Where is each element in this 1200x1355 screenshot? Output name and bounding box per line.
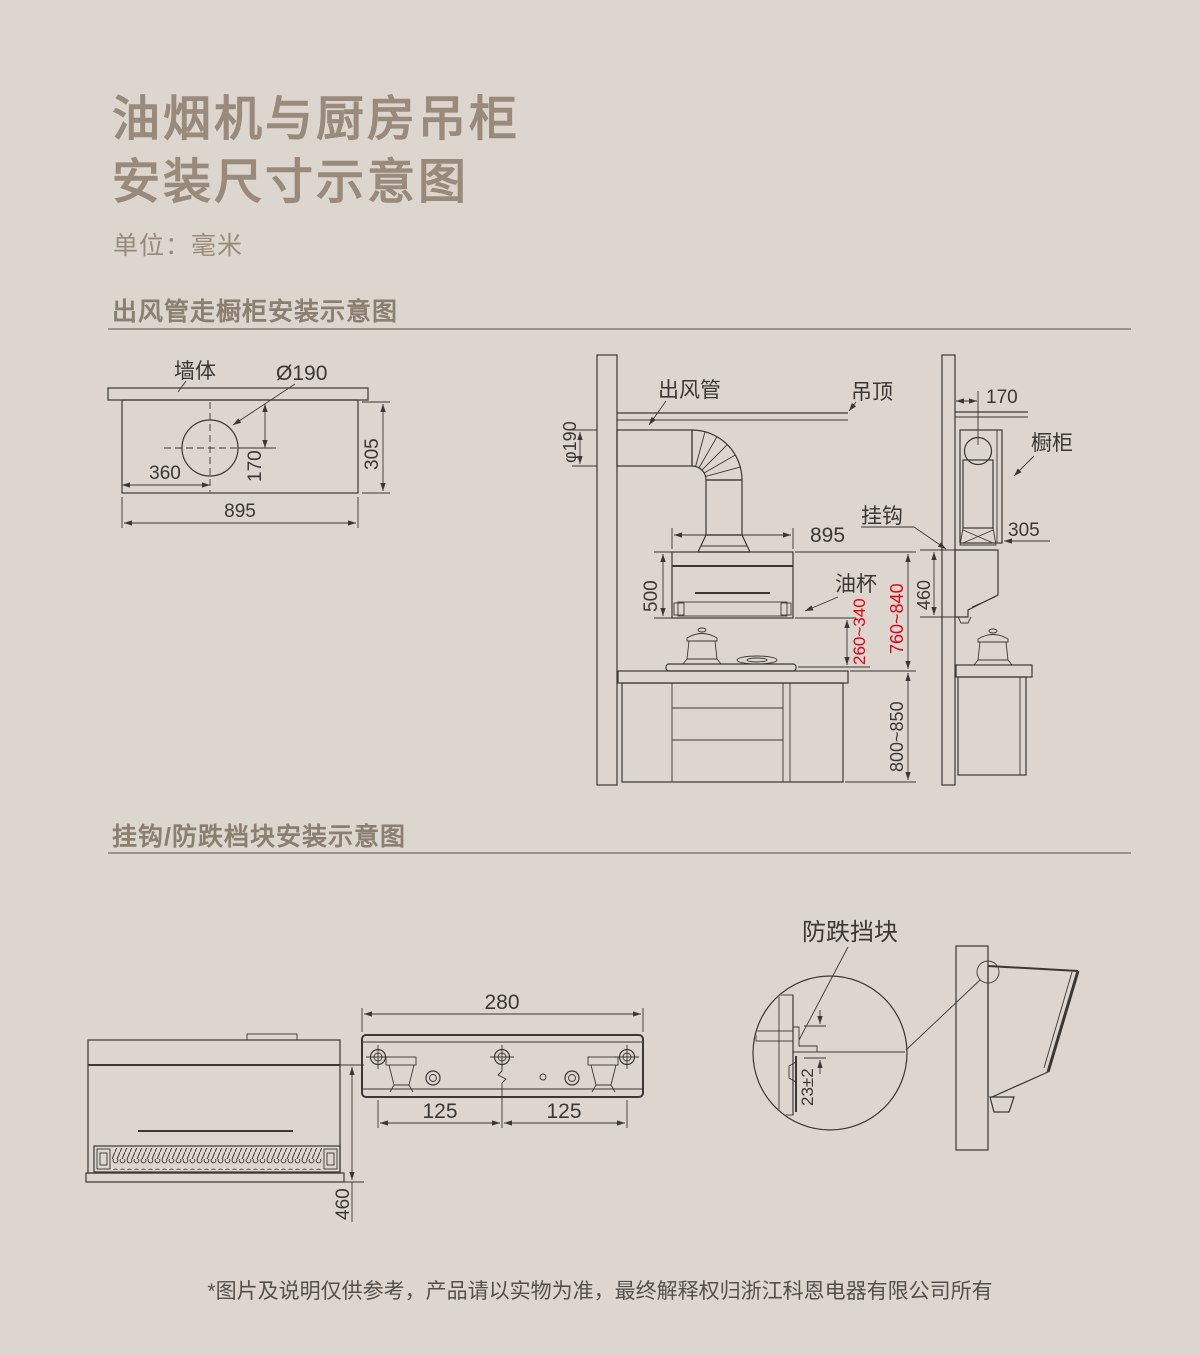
cooking-pot <box>683 628 721 664</box>
hook-plate <box>793 1027 817 1052</box>
cabinet-duct <box>963 460 993 528</box>
dim-280: 280 <box>484 991 519 1014</box>
cabinet-label: 橱柜 <box>1031 432 1073 455</box>
dim-305-cabinet: 305 <box>1008 520 1040 541</box>
exhaust-duct-horizontal <box>617 430 692 466</box>
exhaust-duct-vertical <box>706 480 742 535</box>
anti-drop-detail: 防跌挡块 23±2 <box>753 919 907 1130</box>
dim-895: 895 <box>224 501 256 522</box>
dim-460-front: 460 <box>333 1188 354 1220</box>
dim-800-850: 800~850 <box>887 701 907 772</box>
counter-right <box>956 665 1032 775</box>
callout-leader <box>906 980 980 1050</box>
dim-500: 500 <box>641 580 662 612</box>
hood-wall-side-view <box>906 946 1078 1150</box>
oil-cup-tab <box>958 617 971 623</box>
dim-125-right: 125 <box>546 1100 581 1123</box>
dim-125-left: 125 <box>422 1100 457 1123</box>
duct-dia-label: φ190 <box>560 421 580 463</box>
small-hole <box>540 1074 546 1080</box>
dim-760-840: 760~840 <box>887 583 907 654</box>
hole-dia-label: Ø190 <box>276 362 327 385</box>
page-title-line2: 安装尺寸示意图 <box>112 151 520 214</box>
cabinet-side-view: 170 橱柜 305 460 <box>914 355 1073 785</box>
wall-label: 墙体 <box>174 360 216 383</box>
grommet-right <box>565 1071 579 1085</box>
range-hood-body <box>672 552 793 618</box>
cabinet-leader <box>1014 456 1034 476</box>
section2-heading: 挂钩/防跌档块安装示意图 <box>112 817 406 853</box>
page-title: 油烟机与厨房吊柜 安装尺寸示意图 <box>112 88 520 214</box>
hook-install-diagram: 460 <box>0 900 1200 1260</box>
detail-circle <box>753 976 907 1130</box>
hood-front-view: 460 <box>86 1034 364 1222</box>
section1-rule <box>108 328 1131 330</box>
hook-bolt <box>756 1031 793 1041</box>
page-title-line1: 油烟机与厨房吊柜 <box>112 88 520 151</box>
burner <box>737 656 777 664</box>
wall-cabinet <box>960 430 1002 543</box>
section2-rule <box>108 852 1131 854</box>
hole-dia-leader <box>233 384 295 425</box>
cooking-pot-right <box>974 629 1012 665</box>
wall-section-hatch <box>779 995 793 1115</box>
dim-460-cabinet: 460 <box>914 580 934 610</box>
cooktop <box>666 664 796 671</box>
duct-install-diagram: 墙体 Ø190 360 170 305 895 <box>0 340 1200 800</box>
anti-drop-label: 防跌挡块 <box>802 919 898 946</box>
screw-right <box>615 1045 639 1069</box>
hook-bracket-left <box>386 1057 416 1092</box>
hood-side-profile <box>955 550 998 617</box>
duct-label: 出风管 <box>658 379 721 402</box>
hood-grille <box>678 602 787 616</box>
duct-collar <box>698 535 750 552</box>
section1-heading: 出风管走橱柜安装示意图 <box>112 292 398 328</box>
hook-leader <box>914 527 946 549</box>
bracket-plate <box>362 1035 643 1097</box>
dim-23: 23±2 <box>798 1068 817 1106</box>
dim-170-cabinet: 170 <box>986 387 1018 408</box>
side-elevation-view: 吊顶 φ190 出风管 50 <box>560 355 946 785</box>
dim-305: 305 <box>362 438 383 470</box>
wall-strip <box>108 388 368 400</box>
hook-bracket-right <box>588 1057 618 1092</box>
dim-360: 360 <box>149 463 181 484</box>
footer-note: *图片及说明仅供参考，产品请以实物为准，最终解释权归浙江科恩电器有限公司所有 <box>0 1275 1200 1305</box>
wall-column-right <box>942 355 955 785</box>
dim-895-side: 895 <box>810 524 845 547</box>
wall-column <box>597 355 617 785</box>
oil-cup-label: 油杯 <box>835 573 877 596</box>
dim-260-340: 260~340 <box>850 598 869 665</box>
hook-label: 挂钩 <box>861 505 903 528</box>
wall-panel <box>956 946 988 1150</box>
oil-cup-leader <box>805 597 838 611</box>
hood-bottom-foot <box>990 1097 1014 1112</box>
counter-cabinet <box>618 671 848 782</box>
dim-170: 170 <box>245 450 266 482</box>
bracket-plate-view: 280 125 125 <box>362 991 643 1128</box>
grommet-left <box>426 1071 440 1085</box>
page: 油烟机与厨房吊柜 安装尺寸示意图 单位：毫米 出风管走橱柜安装示意图 <box>0 0 1200 1355</box>
ceiling-label: 吊顶 <box>851 381 893 404</box>
unit-label: 单位：毫米 <box>113 226 243 262</box>
hole-top-view: 墙体 Ø190 360 170 305 895 <box>108 360 390 528</box>
